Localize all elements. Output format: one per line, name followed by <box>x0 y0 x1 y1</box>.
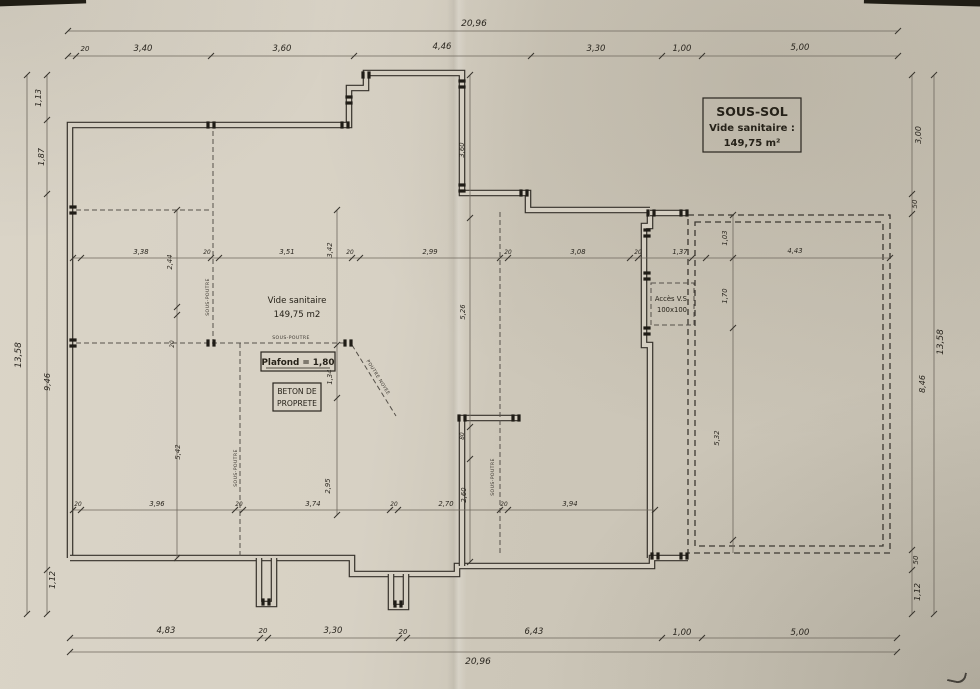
beam-label: SOUS-POUTRE <box>490 458 496 496</box>
room-area: 149,75 m2 <box>274 310 321 320</box>
floorplan-photo: Accès V.S. 100x100 Vide sanitaire 149,75… <box>0 0 980 689</box>
dimension-label: 20 <box>634 250 642 256</box>
dimension-label: 20 <box>81 45 90 53</box>
room-name: Vide sanitaire <box>268 296 327 306</box>
dimension-label: 5,00 <box>791 628 810 638</box>
dimension-label: 5,32 <box>713 430 721 445</box>
access-hatch-size: 100x100 <box>657 306 687 314</box>
dimension-label: 5,00 <box>791 43 810 53</box>
dimension-label: 3,60 <box>273 44 292 54</box>
dimension-chains: 20,96203,403,604,463,301,005,004,83203,3… <box>14 19 946 667</box>
dimension-label: 8,46 <box>918 375 927 393</box>
embedded-beam-label: POUTRE NOYEE <box>365 359 391 396</box>
beam-dashed-lines <box>76 131 500 556</box>
dimension-label: 1,70 <box>721 288 729 303</box>
dimension-label: 13,58 <box>14 342 24 368</box>
dimension-label: 3,51 <box>279 248 294 256</box>
title-box: SOUS-SOL Vide sanitaire : 149,75 m² <box>703 98 801 152</box>
plan-title: SOUS-SOL <box>716 104 788 119</box>
concrete-note-line1: BETON DE <box>277 387 317 396</box>
dimension-label: 20 <box>259 627 268 635</box>
dimension-label: 20 <box>203 250 211 256</box>
dimension-label: 1,13 <box>34 89 43 107</box>
dimension-label: 1,00 <box>673 44 692 54</box>
dimension-label: 5,42 <box>174 444 182 459</box>
access-hatch-label: Accès V.S. <box>655 295 689 303</box>
dimension-label: 20 <box>170 340 176 348</box>
dimension-label: 20 <box>390 502 398 508</box>
dimension-label: 4,43 <box>787 247 802 255</box>
plan-area: 149,75 m² <box>724 138 781 149</box>
dimension-label: 1,03 <box>721 230 729 245</box>
dimension-label: 5,26 <box>459 304 467 320</box>
beam-label: SOUS-POUTRE <box>272 335 310 341</box>
pillar-mark <box>343 339 352 346</box>
dimension-label: 6,43 <box>525 627 544 637</box>
dimension-label: 20,96 <box>461 19 487 29</box>
dimension-label: 20 <box>500 502 508 508</box>
dimension-label: 1,37 <box>672 248 688 256</box>
room-annotations: Vide sanitaire 149,75 m2 Plafond = 1,80 … <box>261 296 335 411</box>
dimension-label: 4,83 <box>157 626 176 636</box>
dimension-label: 3,00 <box>914 126 923 144</box>
ceiling-note: Plafond = 1,80 <box>261 358 334 368</box>
dimension-label: 50 <box>911 199 919 208</box>
dimension-label: 50 <box>912 555 920 564</box>
dimension-label: 3,08 <box>570 248 586 256</box>
concrete-note-line2: PROPRETE <box>277 399 317 408</box>
dimension-label: 1,87 <box>37 147 46 166</box>
dimension-label: 1,00 <box>673 628 692 638</box>
dimension-label: 2,99 <box>422 248 437 256</box>
dimension-label: 13,58 <box>936 329 946 355</box>
dimension-label: 3,74 <box>305 500 320 508</box>
dimension-label: 20,96 <box>465 657 491 667</box>
dimension-label: 1,12 <box>913 583 922 601</box>
floorplan-drawing: Accès V.S. 100x100 Vide sanitaire 149,75… <box>0 0 980 689</box>
dimension-label: 3,60 <box>458 142 466 157</box>
dimension-label: 20 <box>346 250 354 256</box>
dimension-label: 20 <box>74 502 82 508</box>
dimension-label: 3,30 <box>587 44 606 54</box>
dimension-label: 1,12 <box>48 571 57 589</box>
dimension-label: 9,46 <box>43 373 52 391</box>
dimension-label: 4,46 <box>433 42 453 52</box>
dimension-label: 3,96 <box>149 500 165 508</box>
walls <box>70 73 688 607</box>
dimension-label: 20 <box>504 250 512 256</box>
dimension-label: 1,34 <box>326 369 334 384</box>
dashed-extension-walls <box>688 215 890 553</box>
dimension-label: 3,40 <box>134 44 153 54</box>
pillar-mark <box>206 339 215 346</box>
dimension-label: 80 <box>460 432 466 440</box>
dimension-label: 20 <box>399 628 408 636</box>
dimension-label: 2,60 <box>460 487 468 502</box>
dimension-label: 2,95 <box>324 478 332 493</box>
dimension-label: 3,38 <box>133 248 149 256</box>
dimension-label: 3,30 <box>324 626 343 636</box>
dimension-label: 3,42 <box>326 242 334 257</box>
plan-subtitle: Vide sanitaire : <box>709 123 795 134</box>
dimension-label: 2,44 <box>166 254 174 269</box>
beam-label: SOUS-POUTRE <box>205 278 211 316</box>
dimension-label: 3,94 <box>562 500 577 508</box>
beam-label: SOUS-POUTRE <box>233 449 239 487</box>
dimension-label: 20 <box>235 502 243 508</box>
dimension-label: 2,70 <box>438 500 453 508</box>
